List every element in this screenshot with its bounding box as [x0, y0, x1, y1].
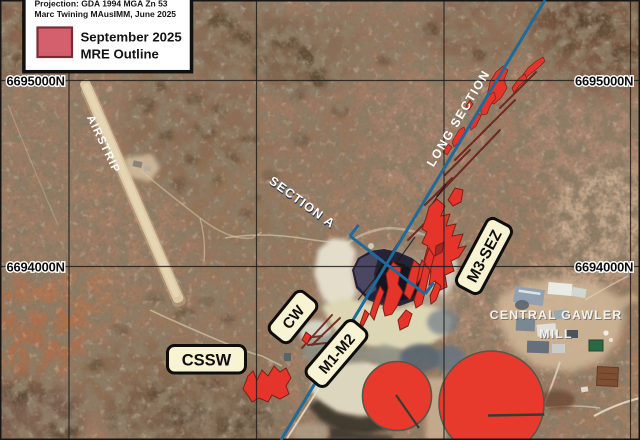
svg-text:MILL: MILL: [539, 327, 572, 341]
svg-text:Projection: GDA 1994 MGA Zn 53: Projection: GDA 1994 MGA Zn 53: [35, 0, 168, 9]
svg-text:CENTRAL GAWLER: CENTRAL GAWLER: [490, 308, 623, 322]
svg-text:6695000N: 6695000N: [575, 73, 633, 88]
svg-text:6694000N: 6694000N: [7, 259, 65, 274]
svg-text:CSSW: CSSW: [182, 351, 232, 369]
svg-text:September 2025: September 2025: [81, 30, 182, 45]
svg-text:6695000N: 6695000N: [7, 73, 65, 88]
svg-text:Marc Twining MAusIMM, June 202: Marc Twining MAusIMM, June 2025: [35, 9, 177, 19]
svg-text:6694000N: 6694000N: [575, 259, 633, 274]
svg-text:MRE Outline: MRE Outline: [81, 47, 159, 62]
